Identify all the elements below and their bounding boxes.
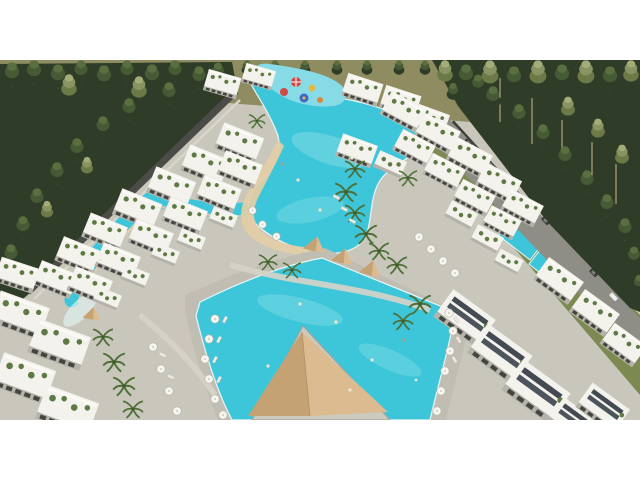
umbrella: [205, 335, 213, 343]
umbrella: [449, 327, 457, 335]
umbrella: [201, 355, 209, 363]
umbrella: [211, 395, 219, 403]
umbrella: [149, 343, 157, 351]
umbrella: [433, 407, 441, 415]
umbrella: [211, 315, 219, 323]
umbrella: [157, 365, 165, 373]
splash-umbrella-yellow: [309, 85, 316, 92]
umbrella: [249, 207, 257, 215]
resort-aerial-scene: [0, 60, 640, 420]
umbrella: [415, 233, 423, 241]
umbrella: [219, 411, 227, 419]
umbrella: [165, 387, 173, 395]
splash-umbrella-orange: [317, 97, 323, 103]
umbrella: [445, 309, 453, 317]
umbrella: [441, 367, 449, 375]
umbrella: [437, 387, 445, 395]
umbrella: [273, 233, 281, 241]
umbrella: [205, 375, 213, 383]
umbrella: [427, 245, 435, 253]
umbrella: [259, 221, 267, 229]
umbrella: [439, 257, 447, 265]
splash-umbrella-red: [280, 88, 288, 96]
rendering-canvas: [0, 0, 640, 480]
umbrella: [173, 407, 181, 415]
umbrella: [446, 347, 454, 355]
umbrella: [451, 269, 459, 277]
